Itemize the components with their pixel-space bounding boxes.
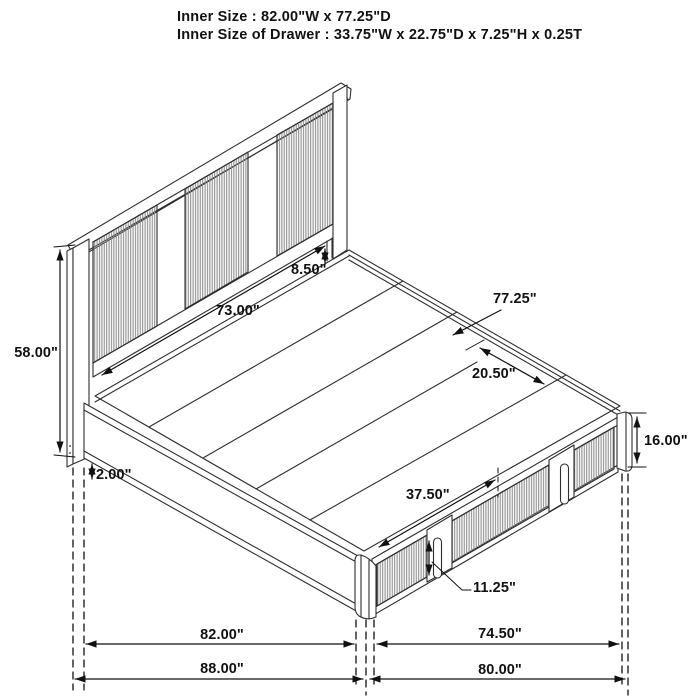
dim-headboard-height: 58.00": [14, 345, 58, 361]
dim-drawer-front-height: 11.25": [473, 580, 516, 596]
inner-size-title: Inner Size : 82.00"W x 77.25"D: [177, 9, 391, 25]
dim-outer-width: 88.00": [200, 661, 244, 677]
headboard-right-post: [333, 85, 347, 259]
bed-line-drawing: [0, 0, 700, 700]
dim-foot-inner-width: 74.50": [478, 626, 522, 642]
dim-deck-gap: 8.50": [291, 262, 327, 278]
right-corner-post: [617, 412, 632, 471]
dim-drawer-span: 37.50": [406, 487, 450, 503]
drawer-handle-slot-2: [561, 464, 569, 504]
front-corner-post: [355, 555, 376, 619]
headboard-left-post-side: [67, 248, 73, 467]
drawer-size-title: Inner Size of Drawer : 33.75"W x 22.75"D…: [177, 27, 582, 43]
dim-ground-clearance: 2.00": [96, 467, 132, 483]
dim-base-height: 16.00": [644, 433, 688, 449]
dim-bed-depth: 77.25": [493, 291, 537, 307]
drawer-handle-slot-1: [434, 538, 442, 578]
dim-rail-section: 20.50": [472, 366, 516, 382]
dim-inner-width: 82.00": [200, 627, 244, 643]
dimension-diagram-page: Inner Size : 82.00"W x 77.25"D Inner Siz…: [0, 0, 700, 700]
dim-headboard-width: 73.00": [216, 303, 260, 319]
dim-foot-outer-width: 80.00": [478, 662, 522, 678]
